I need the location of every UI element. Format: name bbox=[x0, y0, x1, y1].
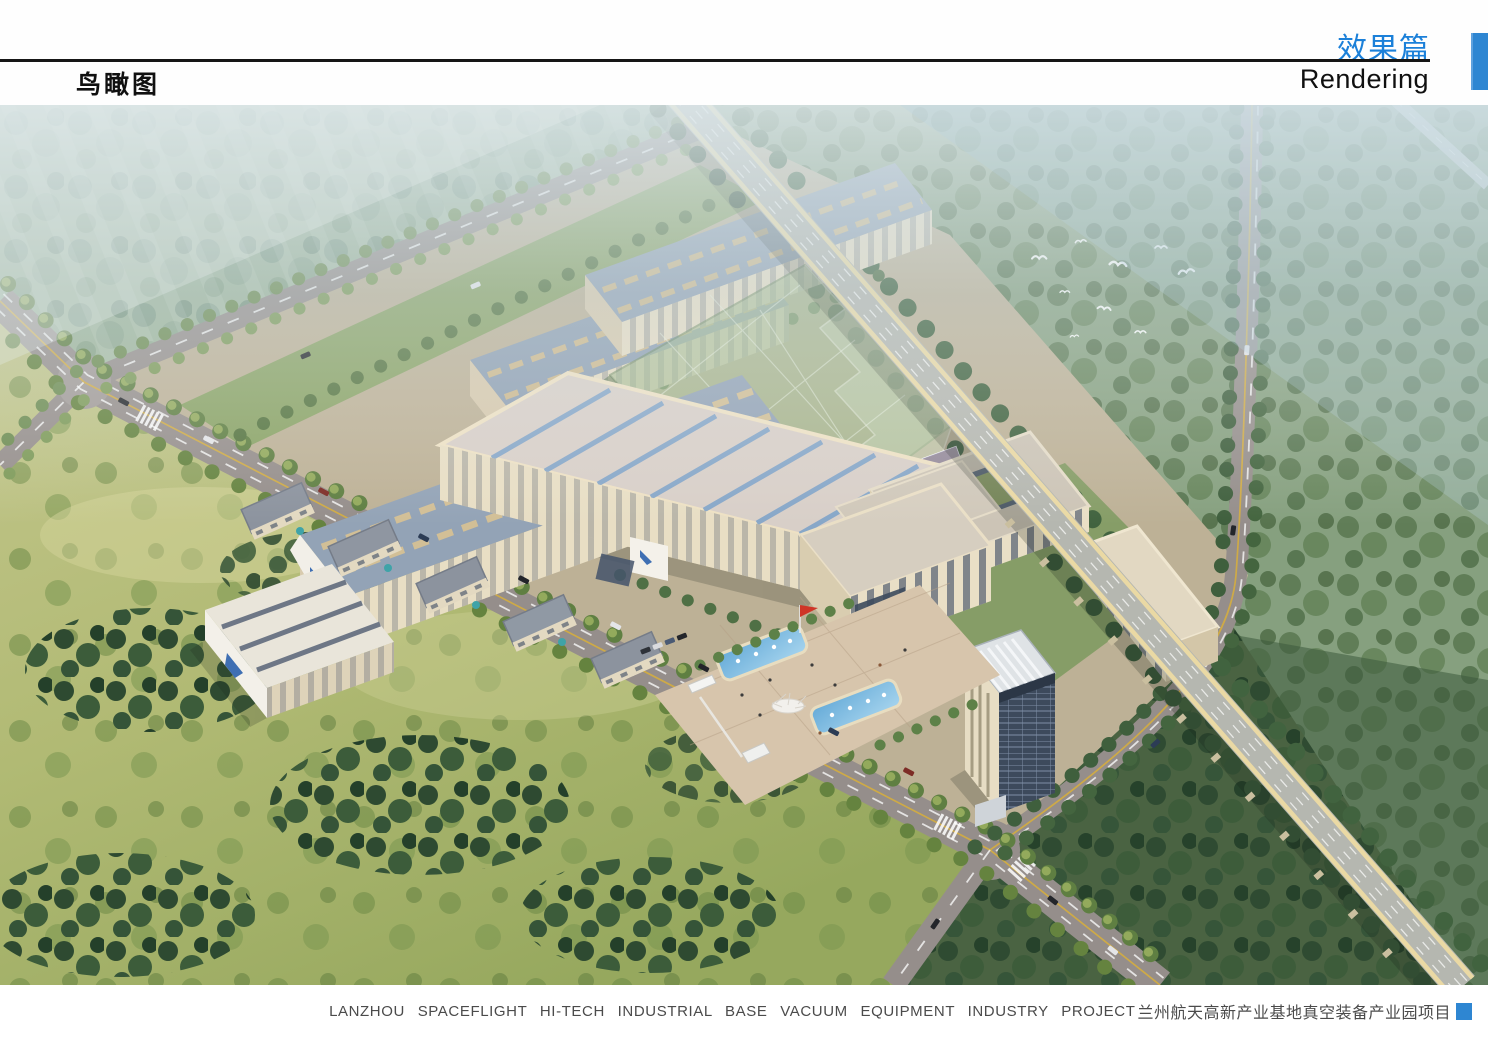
atmospheric-haze bbox=[0, 105, 1488, 525]
presentation-page: { "header": { "section_title_zh": "效果篇",… bbox=[0, 0, 1488, 1052]
page-footer: LANZHOU SPACEFLIGHT HI-TECH INDUSTRIAL B… bbox=[0, 985, 1488, 1052]
page-title: 鸟瞰图 bbox=[76, 65, 160, 101]
page-header: 效果篇 Rendering 鸟瞰图 bbox=[0, 0, 1488, 105]
caption-row: LANZHOU SPACEFLIGHT HI-TECH INDUSTRIAL B… bbox=[329, 999, 1472, 1023]
section-title-en: Rendering bbox=[1300, 64, 1429, 95]
caption-end-marker bbox=[1456, 1003, 1472, 1020]
caption-chinese: 兰州航天高新产业基地真空装备产业园项目 bbox=[1137, 999, 1451, 1023]
aerial-rendering bbox=[0, 105, 1488, 985]
section-tab-marker bbox=[1471, 33, 1488, 90]
header-rule bbox=[0, 59, 1430, 62]
caption-english: LANZHOU SPACEFLIGHT HI-TECH INDUSTRIAL B… bbox=[329, 1003, 1135, 1020]
